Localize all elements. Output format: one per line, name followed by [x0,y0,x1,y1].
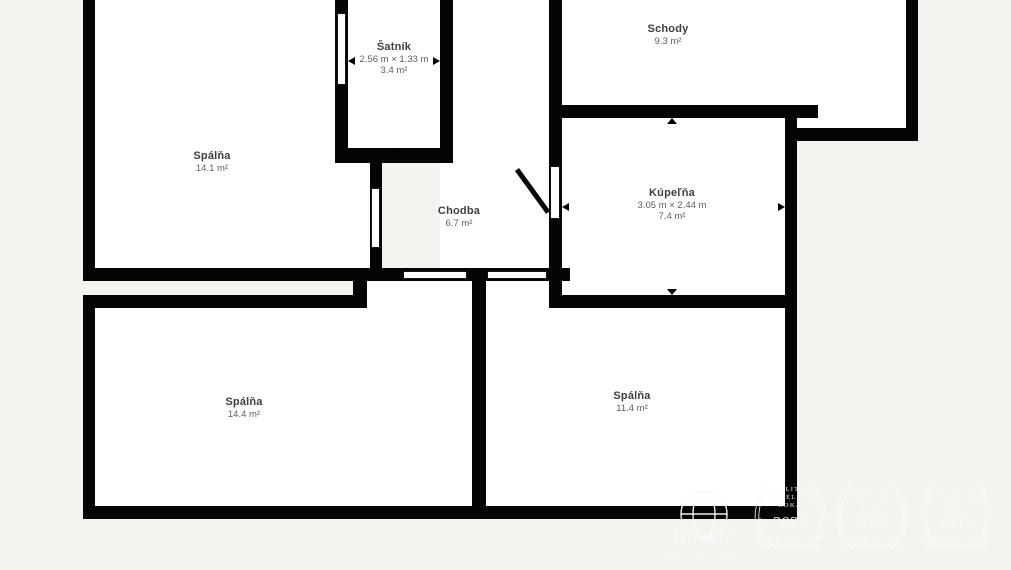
door-opening-chodba-spalna-right [487,271,547,279]
badge-title-line1: REALITNÁ [830,486,914,494]
badge-fineprint-bar [925,545,987,547]
wall-step-connector [353,281,367,308]
wall-satnik-right [440,0,453,163]
room-area: 9.3 m² [648,36,689,47]
room-label-spalna-top-left: Spálňa 14.1 m² [193,150,230,174]
brand-name: Bosen® [648,524,760,549]
wall-bottom [83,506,797,519]
room-area: 3.4 m² [360,65,429,76]
badge-title-line3: ROKA [914,502,998,510]
room-name: Spálňa [613,390,650,403]
laurel-icon [830,478,914,566]
award-badge-2019: REALITNÁ KANCELÁRIA ROKA 2019 ABSOLÚTNY … [914,478,998,566]
room-label-kupelna: Kúpeľňa 3.05 m × 2.44 m 7.4 m² [638,187,707,222]
badge-subtitle: ABSOLÚTNY VÍŤAZ [914,536,998,542]
room-area: 11.4 m² [613,403,650,414]
dimension-arrow-satnik-right-icon [433,57,440,65]
room-name: Spálňa [225,396,262,409]
badge-year: 2019 [914,514,998,532]
dimension-arrow-kupelna-up-icon [667,118,677,124]
badge-subtitle: ABSOLÚTNY VÍŤAZ [830,536,914,542]
badge-subtitle: BRATISLAVSKÝ KRAJ [748,536,832,542]
award-badge-2020: REALITNÁ KANCELÁRIA ROKA 2020 ABSOLÚTNY … [830,478,914,566]
room-name: Kúpeľňa [638,187,707,200]
room-floor-satnik [335,0,453,163]
wall-kupelna-bottom [549,295,797,308]
registered-mark: ® [730,529,736,537]
room-area: 6.7 m² [438,218,480,229]
door-opening-chodba-spalna-left [403,271,467,279]
dimension-arrow-kupelna-left-icon [562,203,569,211]
badge-year: 2020 [830,514,914,532]
dimension-arrow-kupelna-right-icon [778,203,785,211]
wall-bedroom-divider [472,281,486,506]
room-dimensions: 2.56 m × 1.33 m [360,54,429,65]
room-name: Chodba [438,205,480,218]
room-name: Spálňa [193,150,230,163]
dimension-arrow-satnik-left-icon [348,57,355,65]
wall-schody-kupelna-left [549,0,562,308]
brand-text: Bosen [672,524,730,548]
badge-fineprint-bar [759,545,821,547]
wall-left-upper [83,0,95,281]
dimension-arrow-satnik-down-icon [389,149,399,155]
room-name: Schody [648,23,689,36]
room-dimensions: 3.05 m × 2.44 m [638,200,707,211]
door-opening-spalna-chodba [371,188,380,248]
door-opening-satnik [337,13,346,85]
room-label-schody: Schody 9.3 m² [648,23,689,47]
wall-schody-step-bottom [795,128,918,141]
room-label-chodba: Chodba 6.7 m² [438,205,480,229]
laurel-icon [914,478,998,566]
room-name: Šatník [360,41,429,54]
door-opening-kupelna [550,166,560,219]
wall-right [785,117,797,519]
room-label-spalna-bottom-left: Spálňa 14.4 m² [225,396,262,420]
wall-bottom-rooms-top [83,295,367,308]
room-area: 14.4 m² [225,409,262,420]
room-area: 14.1 m² [193,163,230,174]
room-label-spalna-bottom-right: Spálňa 11.4 m² [613,390,650,414]
badge-title-line2: KANCELÁRIA [914,494,998,502]
wall-left-lower [83,295,95,519]
brand-subtitle: REAL ESTATE [648,552,760,558]
badge-fineprint-bar [841,545,903,547]
floor-plan: Spálňa 14.1 m² Šatník 2.56 m × 1.33 m 3.… [0,0,1011,570]
room-label-satnik: Šatník 2.56 m × 1.33 m 3.4 m² [360,41,429,76]
wall-schody-right [906,0,918,141]
badge-title-line1: REALITNÁ [914,486,998,494]
room-floor-spalna-bottom-left-notch [365,270,485,519]
room-area: 7.4 m² [638,211,707,222]
badge-title-line2: KANCELÁRIA [830,494,914,502]
wall-schody-bottom [549,105,818,118]
badge-title-line3: ROKA [830,502,914,510]
dimension-arrow-kupelna-down-icon [667,289,677,295]
